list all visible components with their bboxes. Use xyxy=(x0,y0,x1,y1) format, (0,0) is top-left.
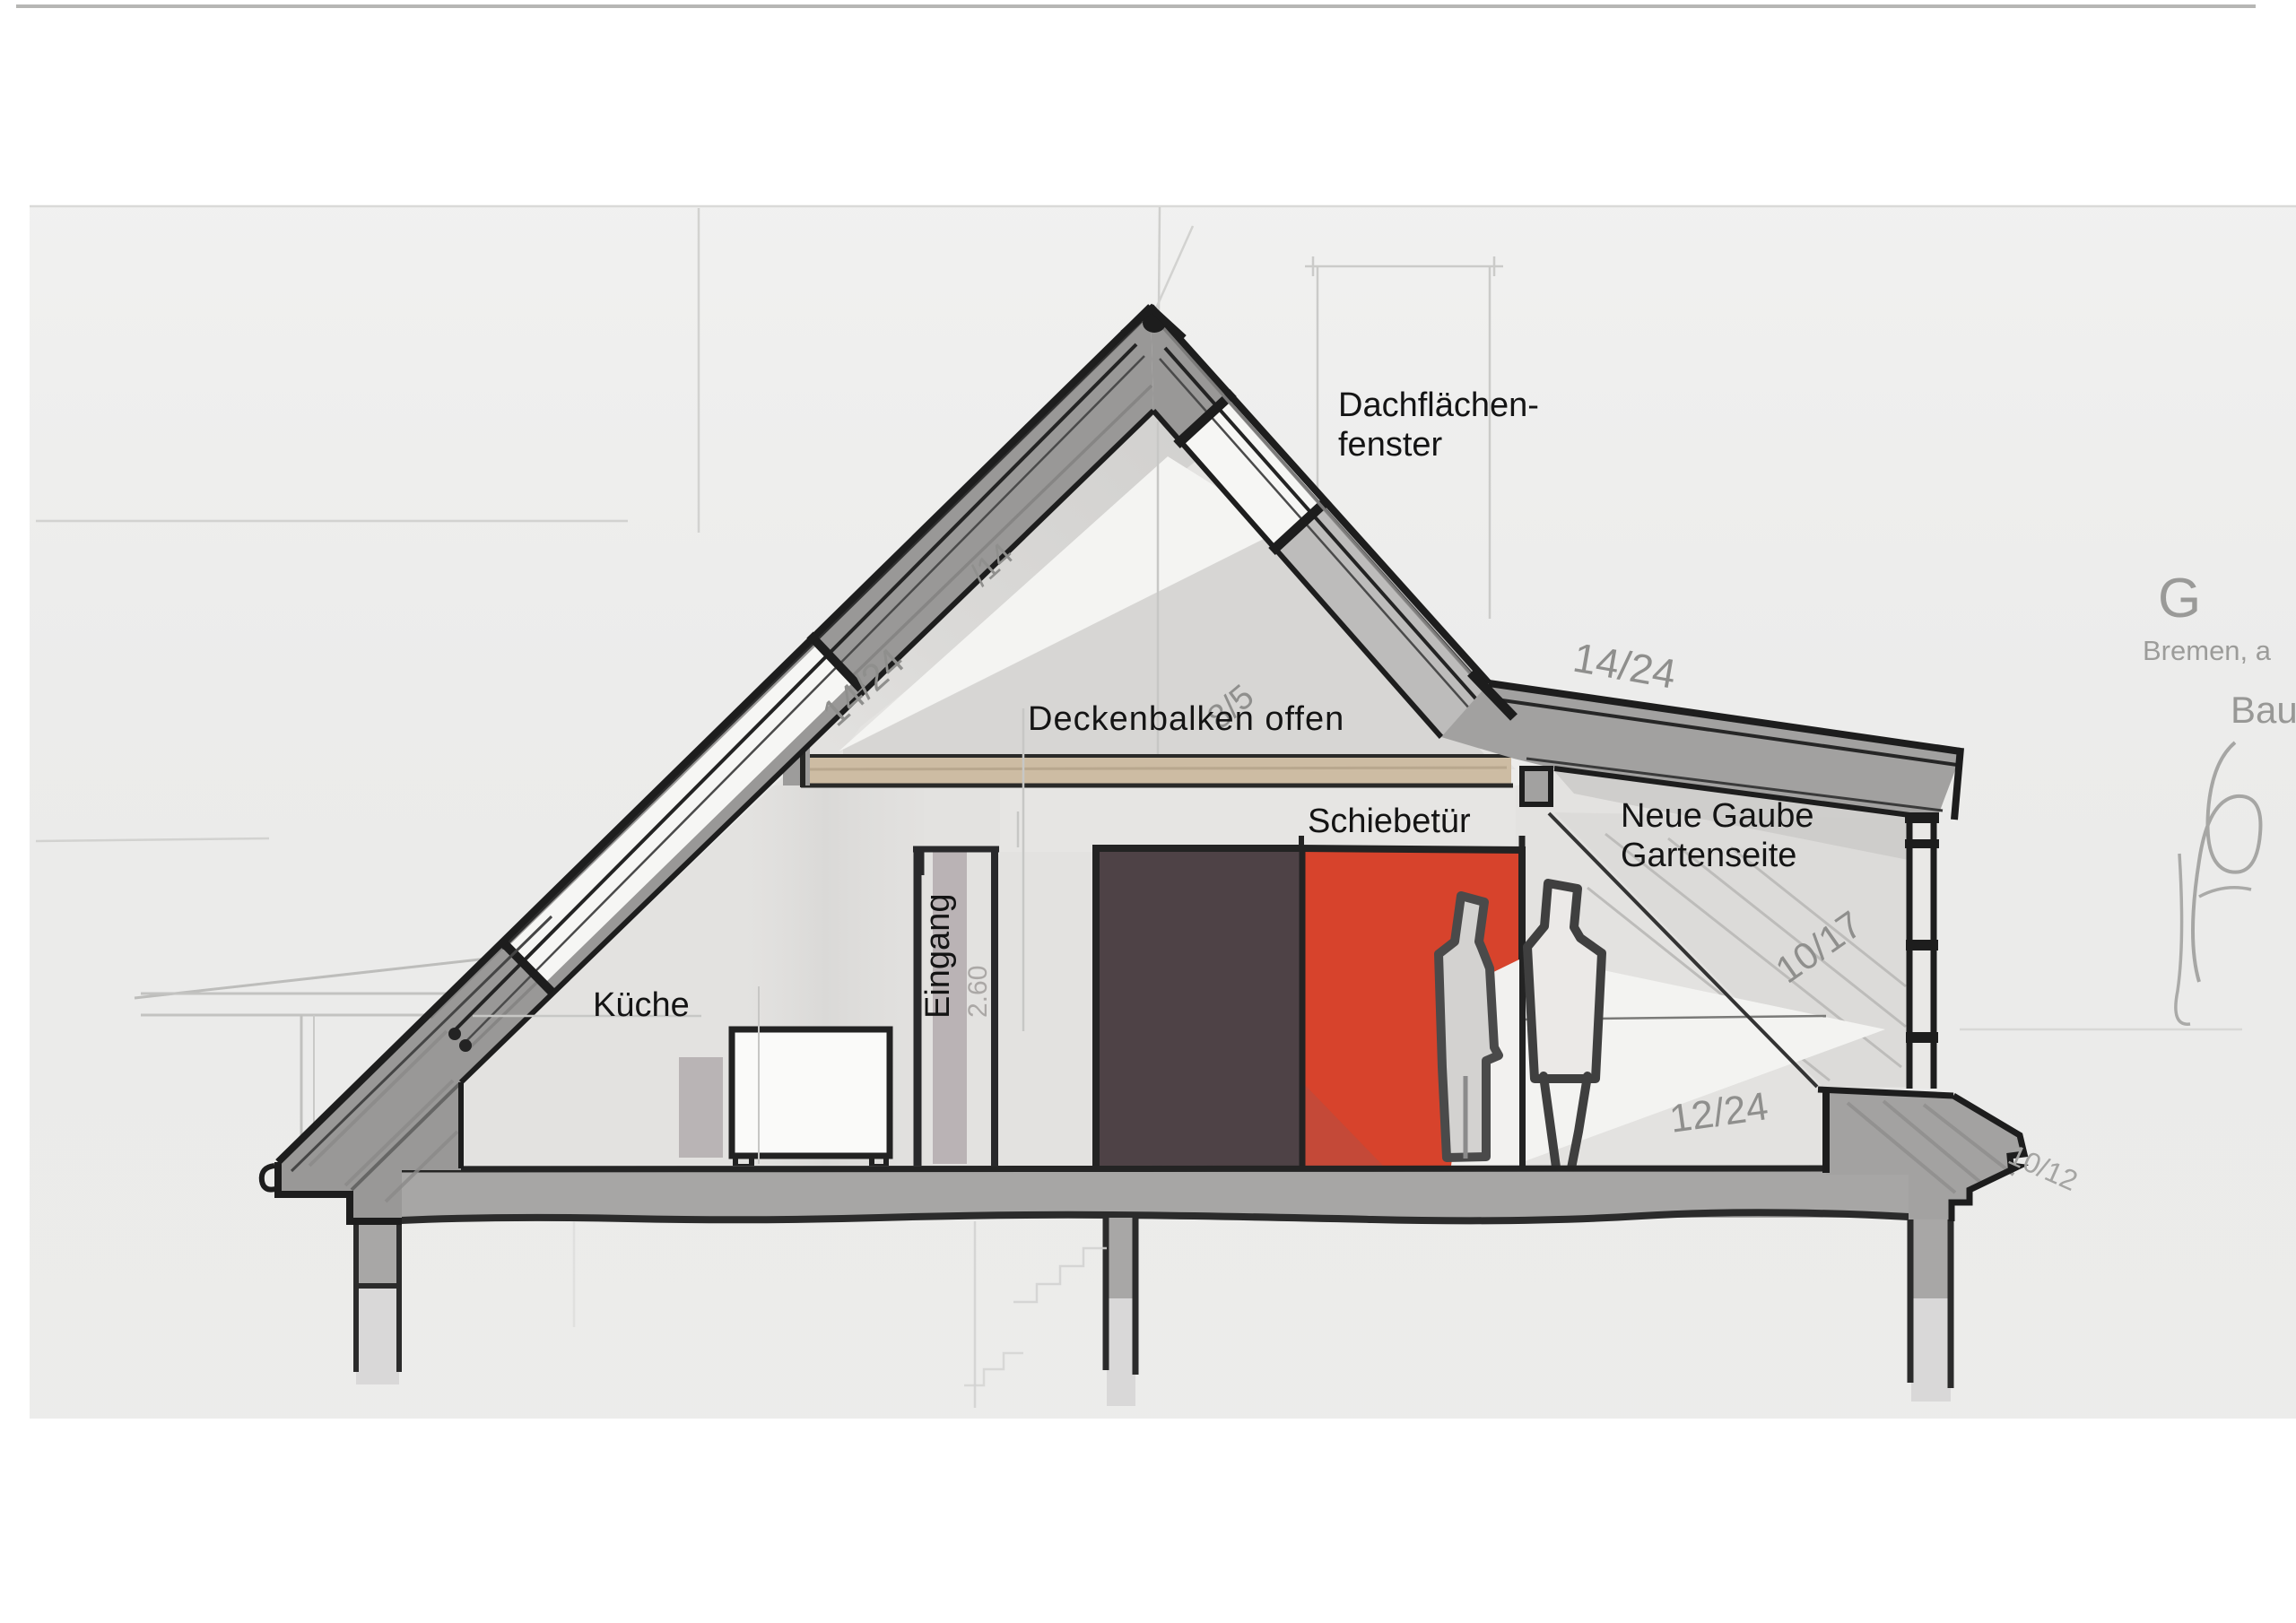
svg-text:Bremen, a: Bremen, a xyxy=(2143,635,2272,666)
svg-text:Bau: Bau xyxy=(2231,689,2296,731)
svg-text:2.60: 2.60 xyxy=(963,966,993,1018)
svg-text:G: G xyxy=(2158,568,2201,629)
